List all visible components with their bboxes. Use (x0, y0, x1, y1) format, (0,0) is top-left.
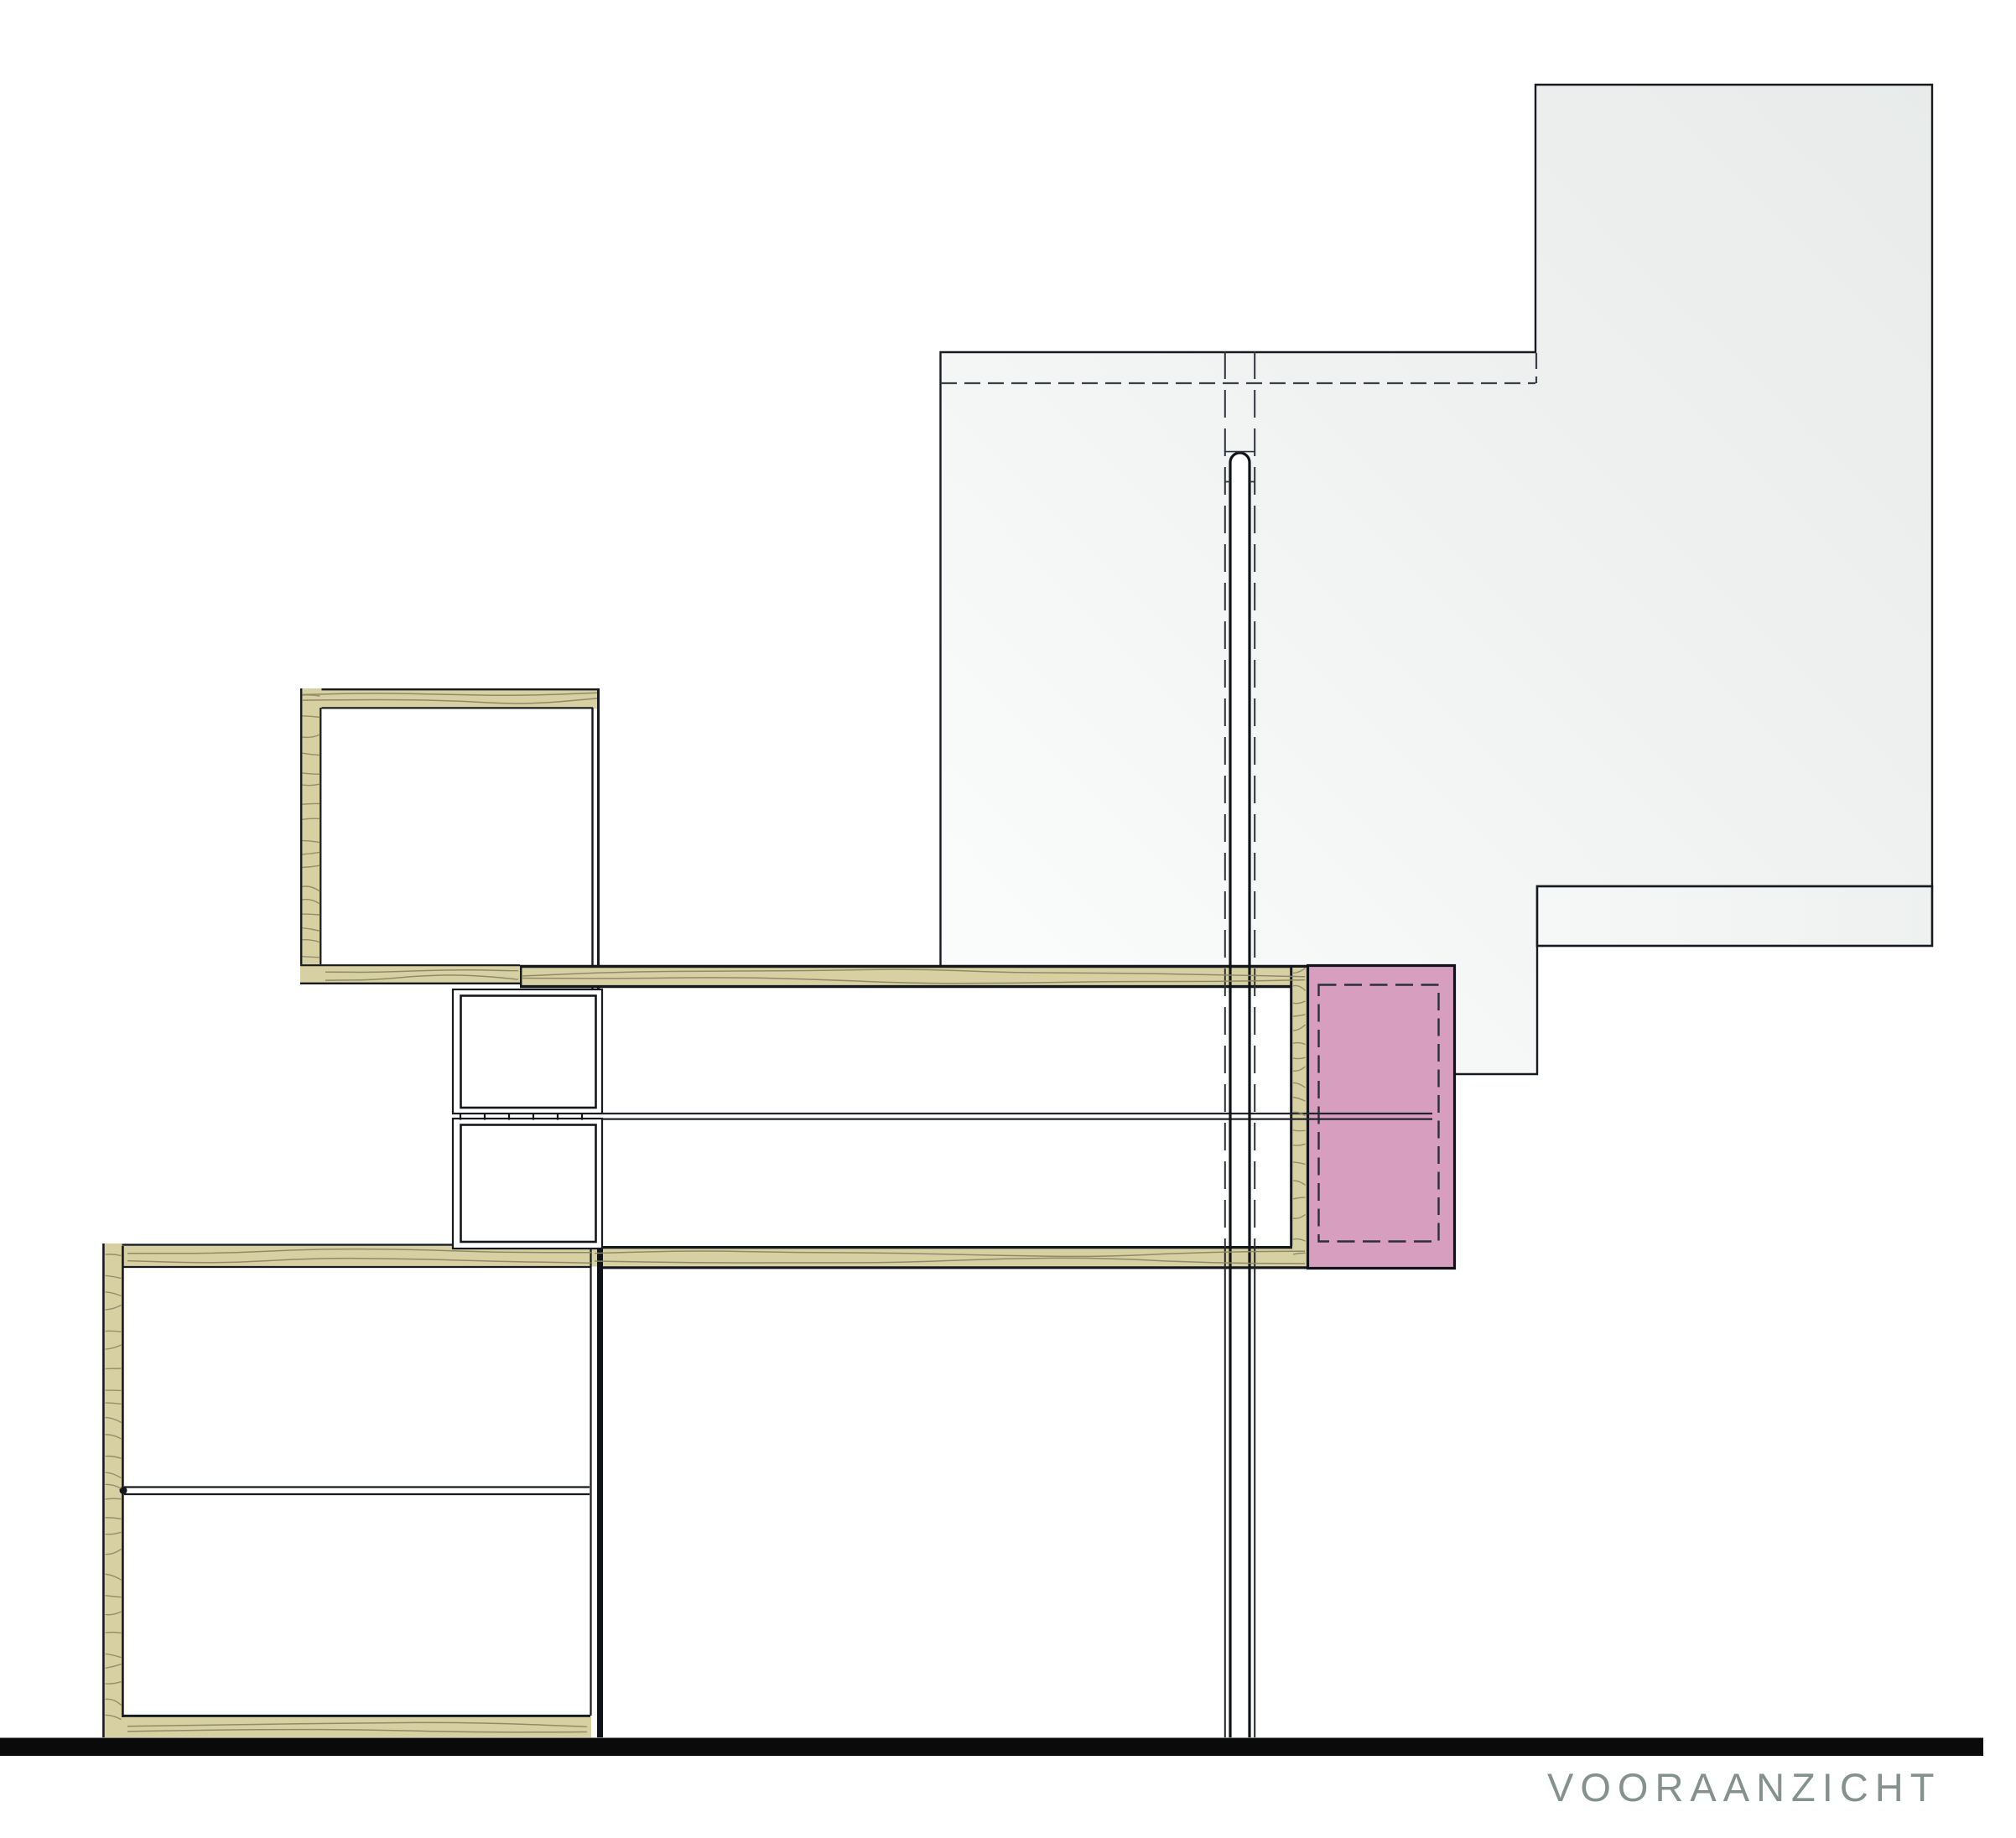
svg-text:VOORAANZICHT: VOORAANZICHT (1547, 1765, 1941, 1809)
